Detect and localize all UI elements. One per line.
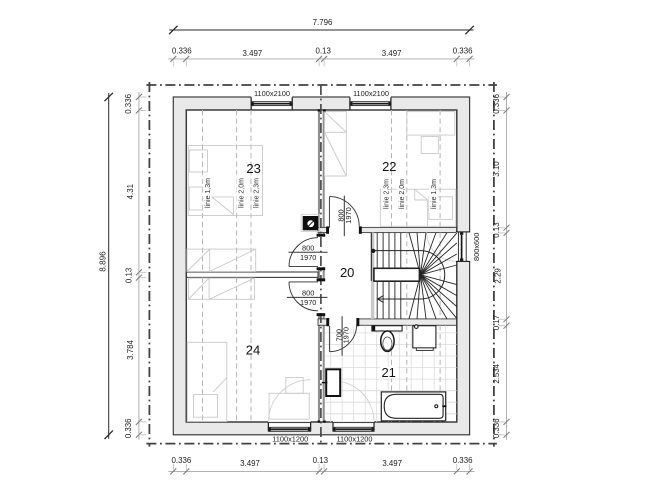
svg-text:4.31: 4.31 (126, 184, 135, 199)
svg-text:0.336: 0.336 (124, 93, 133, 113)
svg-text:linie 1,3m: linie 1,3m (205, 178, 212, 208)
svg-text:0.13: 0.13 (492, 222, 501, 238)
svg-text:linie 2,3m: linie 2,3m (254, 178, 261, 208)
svg-text:3.497: 3.497 (382, 49, 402, 58)
svg-text:3.497: 3.497 (382, 459, 402, 468)
svg-text:3.784: 3.784 (126, 340, 135, 360)
svg-text:7.796: 7.796 (313, 18, 333, 27)
svg-text:0.336: 0.336 (492, 93, 501, 113)
svg-text:1100x1200: 1100x1200 (336, 435, 372, 444)
svg-text:0.336: 0.336 (172, 456, 192, 465)
svg-text:0.13: 0.13 (125, 267, 134, 283)
svg-text:1970: 1970 (342, 327, 351, 343)
svg-text:800: 800 (302, 244, 314, 253)
svg-text:0.336: 0.336 (172, 46, 192, 55)
svg-text:21: 21 (381, 365, 395, 380)
svg-text:0.13: 0.13 (316, 46, 332, 55)
svg-text:1970: 1970 (300, 298, 316, 307)
svg-text:3.497: 3.497 (240, 459, 260, 468)
svg-text:0.336: 0.336 (453, 456, 473, 465)
svg-text:1100x2100: 1100x2100 (353, 89, 389, 98)
svg-text:3.10: 3.10 (492, 161, 501, 177)
svg-text:22: 22 (382, 159, 396, 174)
svg-text:0.13: 0.13 (313, 456, 329, 465)
svg-text:3.497: 3.497 (243, 49, 263, 58)
svg-text:2.29: 2.29 (493, 268, 502, 284)
svg-text:1970: 1970 (300, 253, 316, 262)
svg-text:800x600: 800x600 (472, 233, 481, 261)
svg-text:20: 20 (340, 265, 354, 280)
svg-text:linie 1,3m: linie 1,3m (431, 179, 438, 209)
svg-text:0.17: 0.17 (492, 315, 501, 330)
svg-text:0.336: 0.336 (124, 418, 133, 438)
svg-text:linie 2,3m: linie 2,3m (383, 179, 390, 209)
svg-text:0.336: 0.336 (453, 46, 473, 55)
svg-text:1100x2100: 1100x2100 (254, 89, 290, 98)
svg-text:linie 2,0m: linie 2,0m (239, 178, 246, 208)
svg-text:2.534: 2.534 (492, 363, 501, 383)
svg-text:linie 2,0m: linie 2,0m (399, 179, 406, 209)
svg-text:800: 800 (302, 289, 314, 298)
svg-text:1100x1200: 1100x1200 (272, 435, 308, 444)
svg-text:24: 24 (246, 342, 260, 357)
svg-text:1970: 1970 (344, 207, 353, 223)
svg-text:0.336: 0.336 (492, 418, 501, 438)
svg-text:23: 23 (246, 161, 260, 176)
svg-text:8.896: 8.896 (98, 251, 107, 272)
